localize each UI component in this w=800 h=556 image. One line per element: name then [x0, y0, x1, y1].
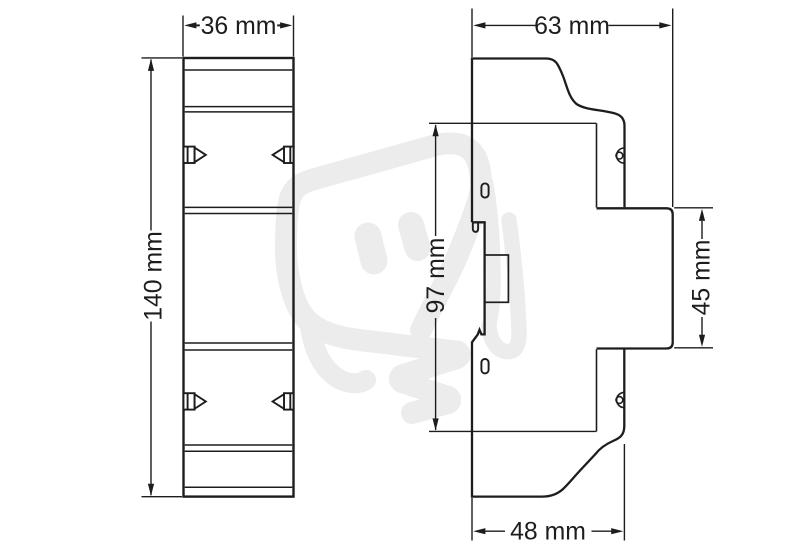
svg-text:97 mm: 97 mm	[423, 238, 450, 314]
svg-text:45 mm: 45 mm	[689, 240, 716, 316]
svg-text:48 mm: 48 mm	[510, 519, 586, 546]
svg-text:140 mm: 140 mm	[141, 231, 168, 321]
svg-text:36 mm: 36 mm	[201, 13, 277, 40]
svg-text:63 mm: 63 mm	[534, 13, 610, 40]
